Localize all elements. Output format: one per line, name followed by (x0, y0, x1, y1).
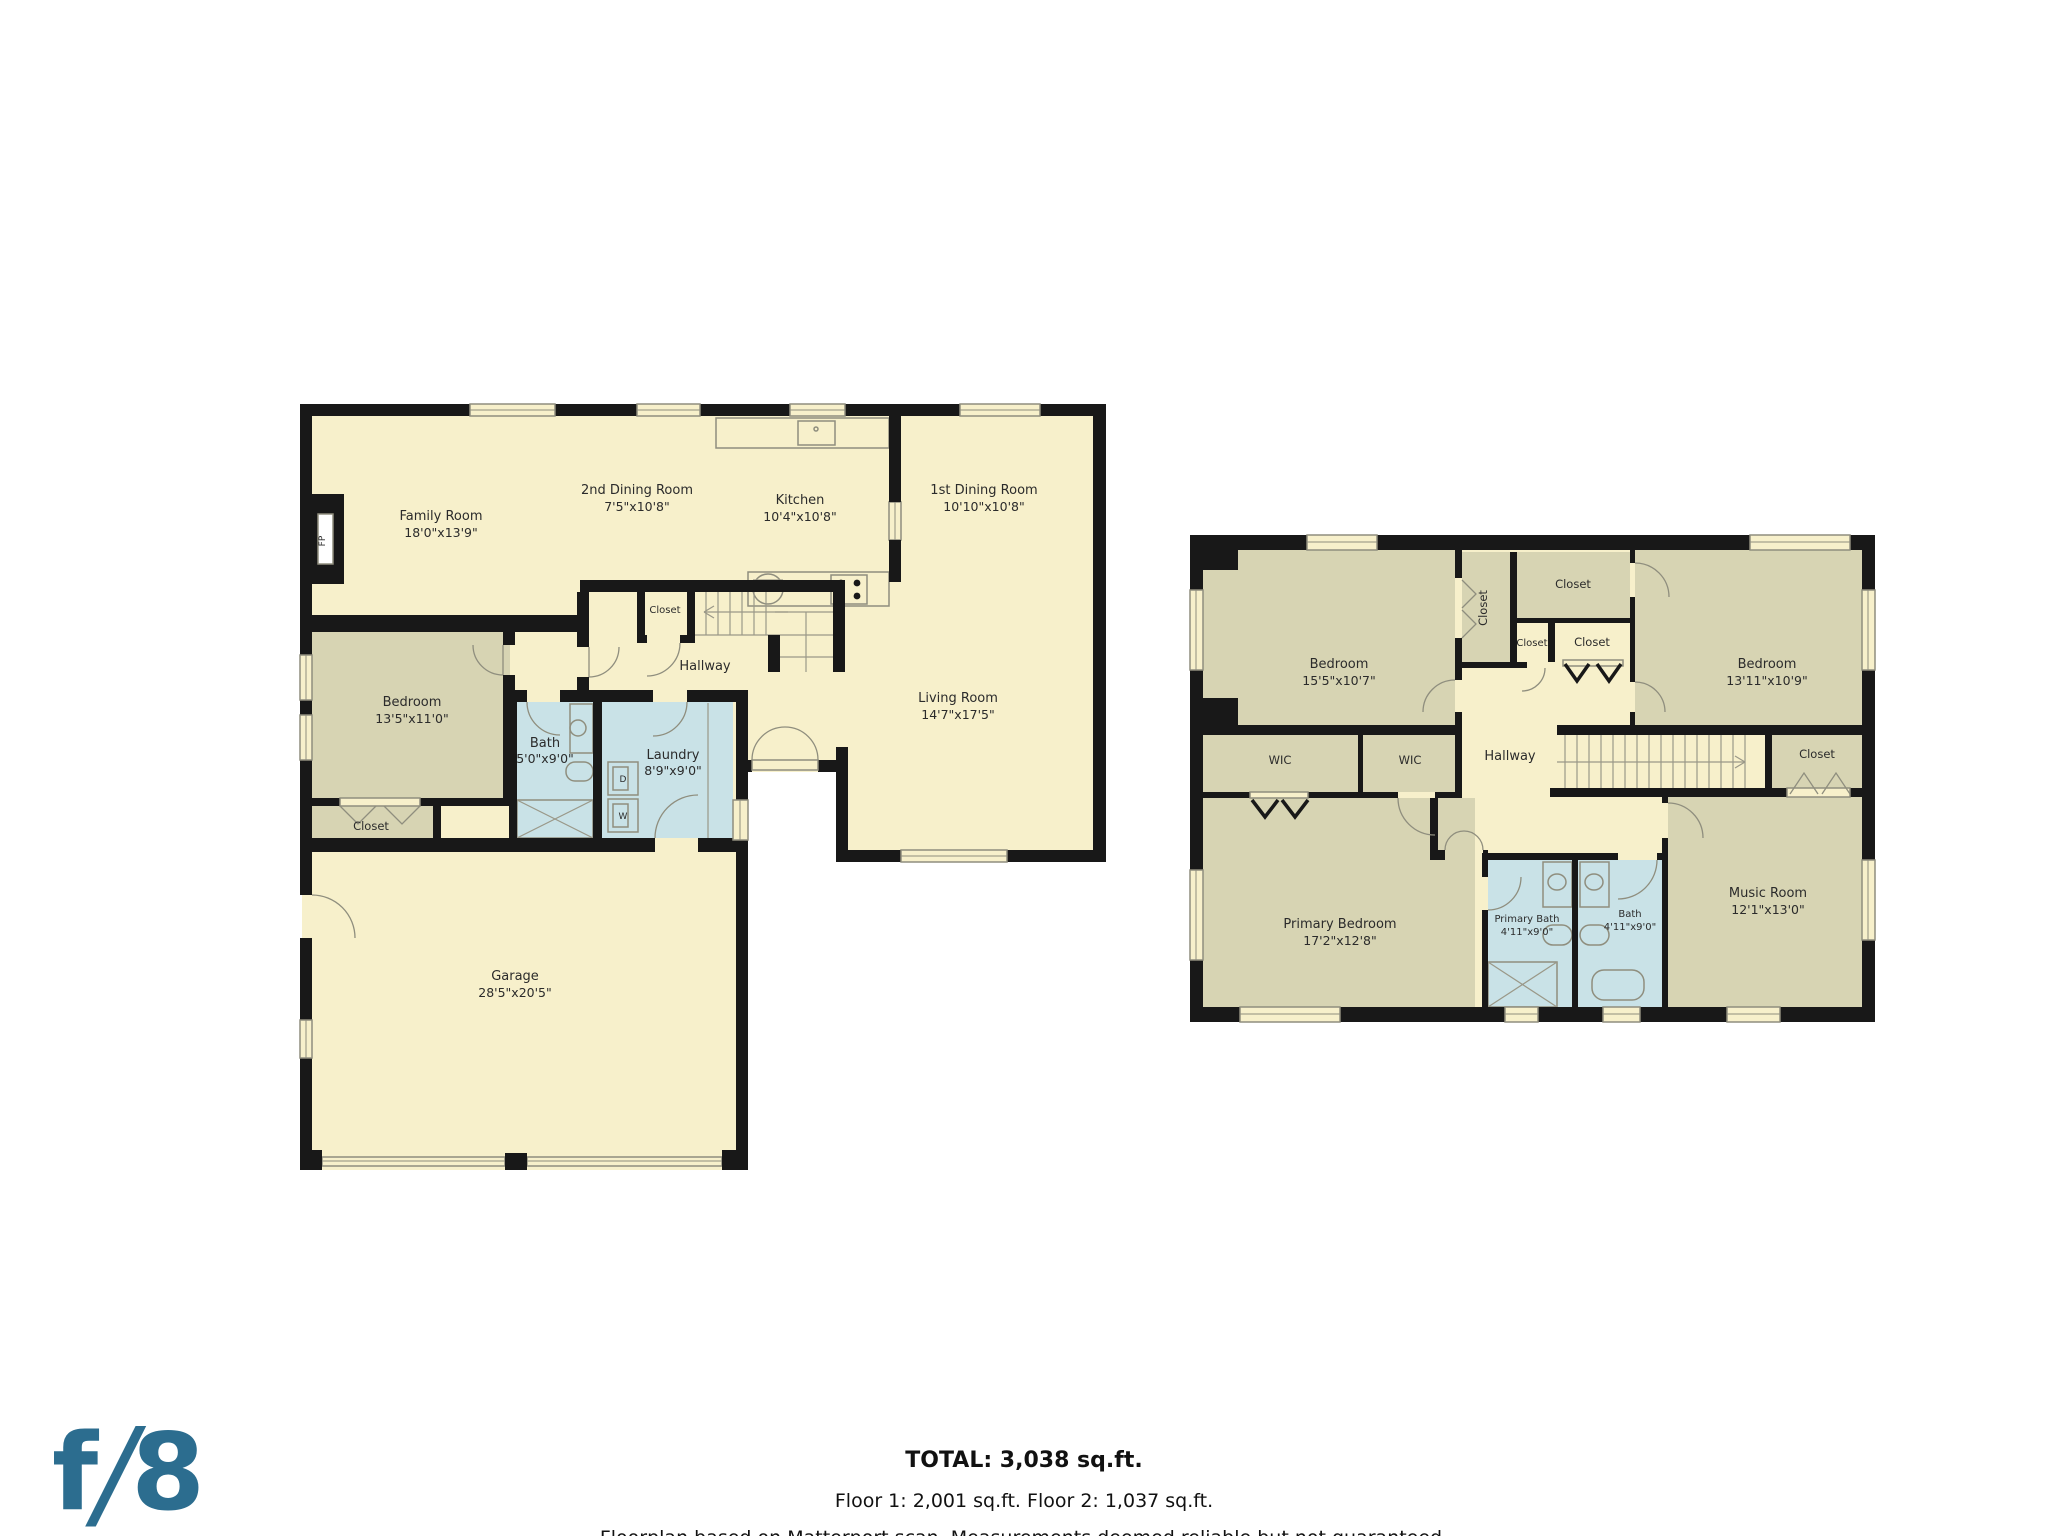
floor2-closet-right-label: Closet (1799, 747, 1835, 761)
floor2-bedroom-right-label: Bedroom (1738, 657, 1797, 672)
floor1-dining2-label: 2nd Dining Room (581, 483, 693, 498)
floor2-primary-bath-label: Primary Bath (1494, 914, 1559, 925)
floor1-dryer-letter: D (620, 775, 627, 785)
floorplan-page: Family Room 18'0"x13'9" 2nd Dining Room … (0, 0, 2048, 1536)
floor1-garage-dims: 28'5"x20'5" (478, 985, 552, 1000)
floor2-bath-dims: 4'11"x9'0" (1604, 922, 1656, 933)
floor1-bedroom-dims: 13'5"x11'0" (375, 711, 449, 726)
floor2-music-room-label: Music Room (1729, 886, 1807, 901)
floor2-primary-bath-dims: 4'11"x9'0" (1501, 927, 1553, 938)
floor2-primary-bedroom-label: Primary Bedroom (1283, 917, 1396, 932)
floor2-music-room-dims: 12'1"x13'0" (1731, 902, 1805, 917)
floor2-hallway-label: Hallway (1484, 749, 1536, 764)
floor2-bedroom-left-dims: 15'5"x10'7" (1302, 673, 1376, 688)
floor1-laundry-label: Laundry (647, 748, 700, 763)
floor1-bath-label: Bath (530, 736, 560, 751)
floor1-bedroom-closet-label: Closet (353, 819, 389, 833)
floor1-laundry-dims: 8'9"x9'0" (644, 763, 702, 778)
floor2-bedroom-left-floor (1203, 550, 1455, 727)
floor1-kitchen-label: Kitchen (776, 493, 825, 508)
disclaimer-text: Floorplan based on Matterport scan. Meas… (0, 1527, 2048, 1536)
floor1-bath-dims: 5'0"x9'0" (516, 751, 574, 766)
floor2-primary-bedroom-dims: 17'2"x12'8" (1303, 933, 1377, 948)
floor1-hall-closet-label: Closet (649, 605, 680, 616)
floor1-kitchen-dims: 10'4"x10'8" (763, 509, 837, 524)
floor2-closet-right-floor (1772, 733, 1862, 790)
floorplan-canvas: Family Room 18'0"x13'9" 2nd Dining Room … (0, 0, 2048, 1536)
floor2-plan: Bedroom 15'5"x10'7" Closet Closet Closet… (1190, 535, 1875, 1022)
floor1-dining1-dims: 10'10"x10'8" (943, 499, 1024, 514)
floor1-dining1-label: 1st Dining Room (930, 483, 1037, 498)
floor-areas-text: Floor 1: 2,001 sq.ft. Floor 2: 1,037 sq.… (0, 1490, 2048, 1512)
floor2-closet-small-left-label: Closet (1516, 638, 1547, 649)
floor1-living-label: Living Room (918, 691, 998, 706)
floor1-washer-letter: W (619, 812, 628, 822)
floor2-bath-floor (1578, 860, 1662, 1007)
floor2-closet-small-right-label: Closet (1574, 635, 1610, 649)
floor1-dining2-dims: 7'5"x10'8" (604, 499, 670, 514)
floor1-bath-floor (517, 702, 593, 838)
floor2-closet-tall-label: Closet (1476, 590, 1490, 626)
floor1-living-dims: 14'7"x17'5" (921, 707, 995, 722)
floor1-hallway-label: Hallway (679, 659, 731, 674)
floor1-family-room-dims: 18'0"x13'9" (404, 525, 478, 540)
floor2-wic-mid-label: WIC (1399, 753, 1422, 767)
floor2-bath-label: Bath (1618, 909, 1641, 920)
total-area-text: TOTAL: 3,038 sq.ft. (0, 1448, 2048, 1473)
floor2-wic-left-label: WIC (1269, 753, 1292, 767)
floor1-garage-label: Garage (491, 969, 539, 984)
floor2-bedroom-right-floor (1635, 550, 1862, 727)
floor1-family-room-label: Family Room (400, 509, 483, 524)
floor1-fireplace-letter: FP (318, 535, 328, 546)
floor1-bedroom-label: Bedroom (383, 695, 442, 710)
floor2-bedroom-left-label: Bedroom (1310, 657, 1369, 672)
floor2-bedroom-right-dims: 13'11"x10'9" (1726, 673, 1807, 688)
floor1-plan: Family Room 18'0"x13'9" 2nd Dining Room … (300, 404, 1106, 1170)
floor2-closet-top-label: Closet (1555, 577, 1591, 591)
